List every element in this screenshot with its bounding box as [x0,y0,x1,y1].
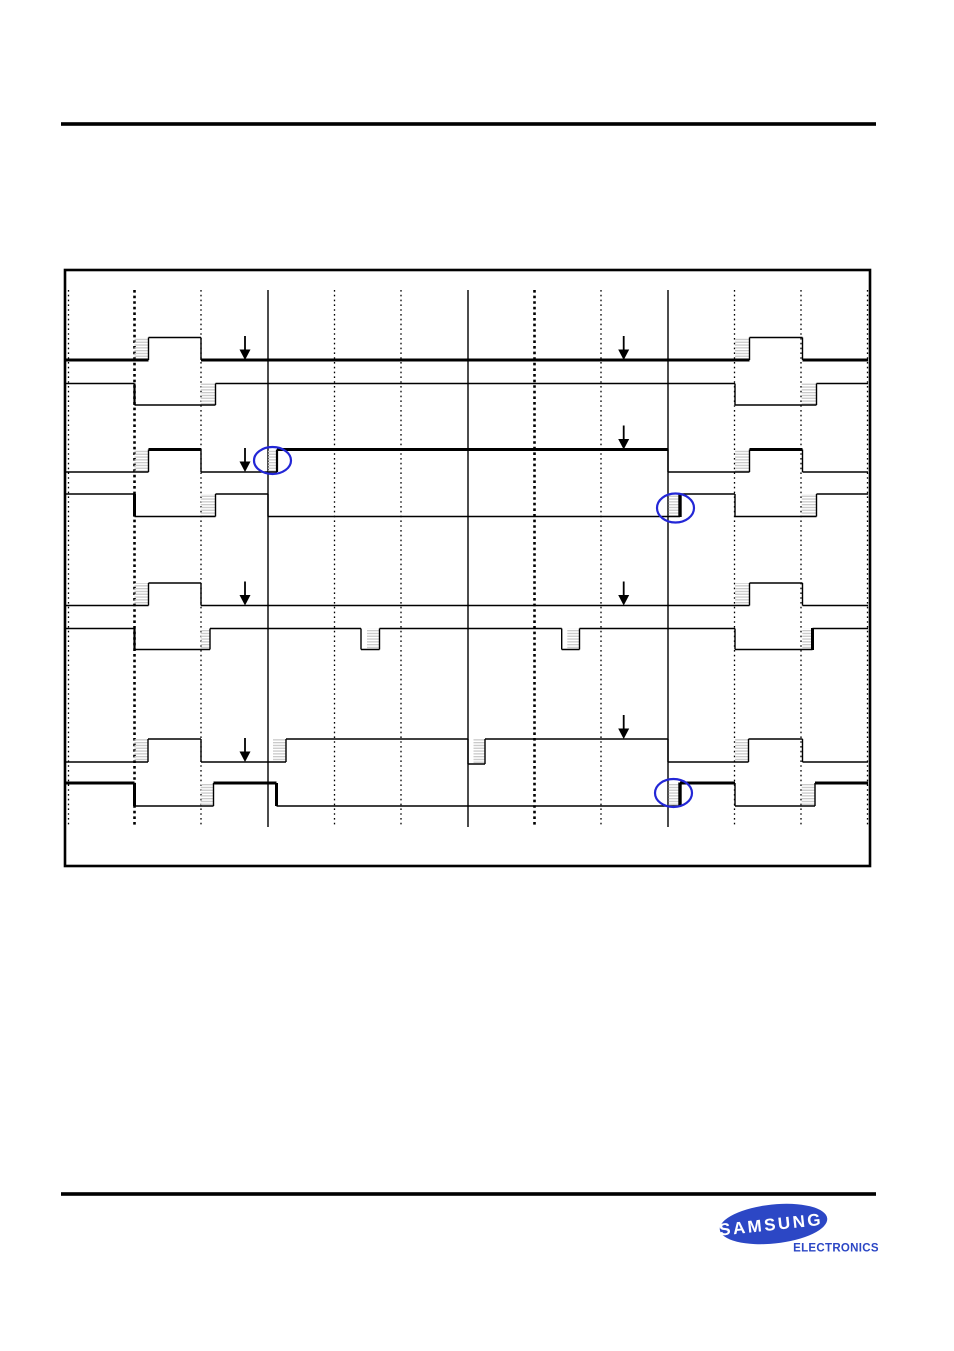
row-7-hatch-region [474,739,485,764]
row-6-hatch-region [567,629,579,650]
timing-arrow-head [240,462,251,473]
row-8-hatch-region [802,783,815,806]
datasheet-page: SAMSUNG ELECTRONICS [0,0,954,1351]
row-4-hatch-region [802,494,817,517]
row-5-hatch-region [135,583,149,606]
row-3-hatch-region [268,450,277,473]
row-8-hatch-region [201,783,214,806]
header-rule [61,122,876,126]
timing-arrow-head [618,439,629,450]
timing-arrow-head [618,350,629,361]
row-7-hatch-region [273,739,286,762]
row-3-hatch-region [135,450,149,473]
sampling-arrows [240,336,630,762]
samsung-electronics-label: ELECTRONICS [793,1243,879,1255]
row-1-hatch-region [735,338,750,361]
row-6-hatch-region [201,629,210,650]
row-6-hatch-region [367,629,380,650]
row-4-hatch-region [201,494,216,517]
row-1-hatch-region [135,338,149,361]
row-7-hatch-region [735,739,749,762]
timing-diagram-canvas: SAMSUNG ELECTRONICS [0,0,954,1351]
row-2-hatch-region [802,384,817,406]
timing-arrow-head [240,350,251,361]
row-6-hatch-region [802,629,812,650]
timing-arrow-head [240,752,251,763]
footer-rule [61,1192,876,1196]
timing-arrow-head [618,595,629,606]
timing-arrow-head [618,729,629,740]
samsung-logo: SAMSUNG ELECTRONICS [718,1199,879,1255]
waveforms [65,338,868,807]
row-8-hatch-region [669,783,681,806]
row-7-hatch-region [135,739,149,762]
row-3-hatch-region [735,450,750,473]
row-2-hatch-region [201,384,216,406]
row-5-hatch-region [735,583,750,606]
row-4-hatch-region [669,494,681,517]
transition-regions [135,338,817,807]
timing-arrow-head [240,595,251,606]
